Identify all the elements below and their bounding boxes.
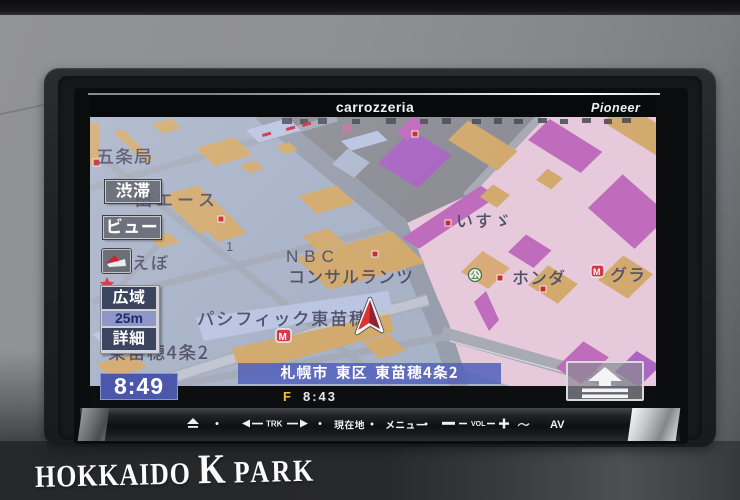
svg-text:TRK: TRK — [266, 420, 283, 429]
svg-text:VOL: VOL — [471, 421, 486, 428]
svg-text:AV: AV — [550, 419, 565, 431]
